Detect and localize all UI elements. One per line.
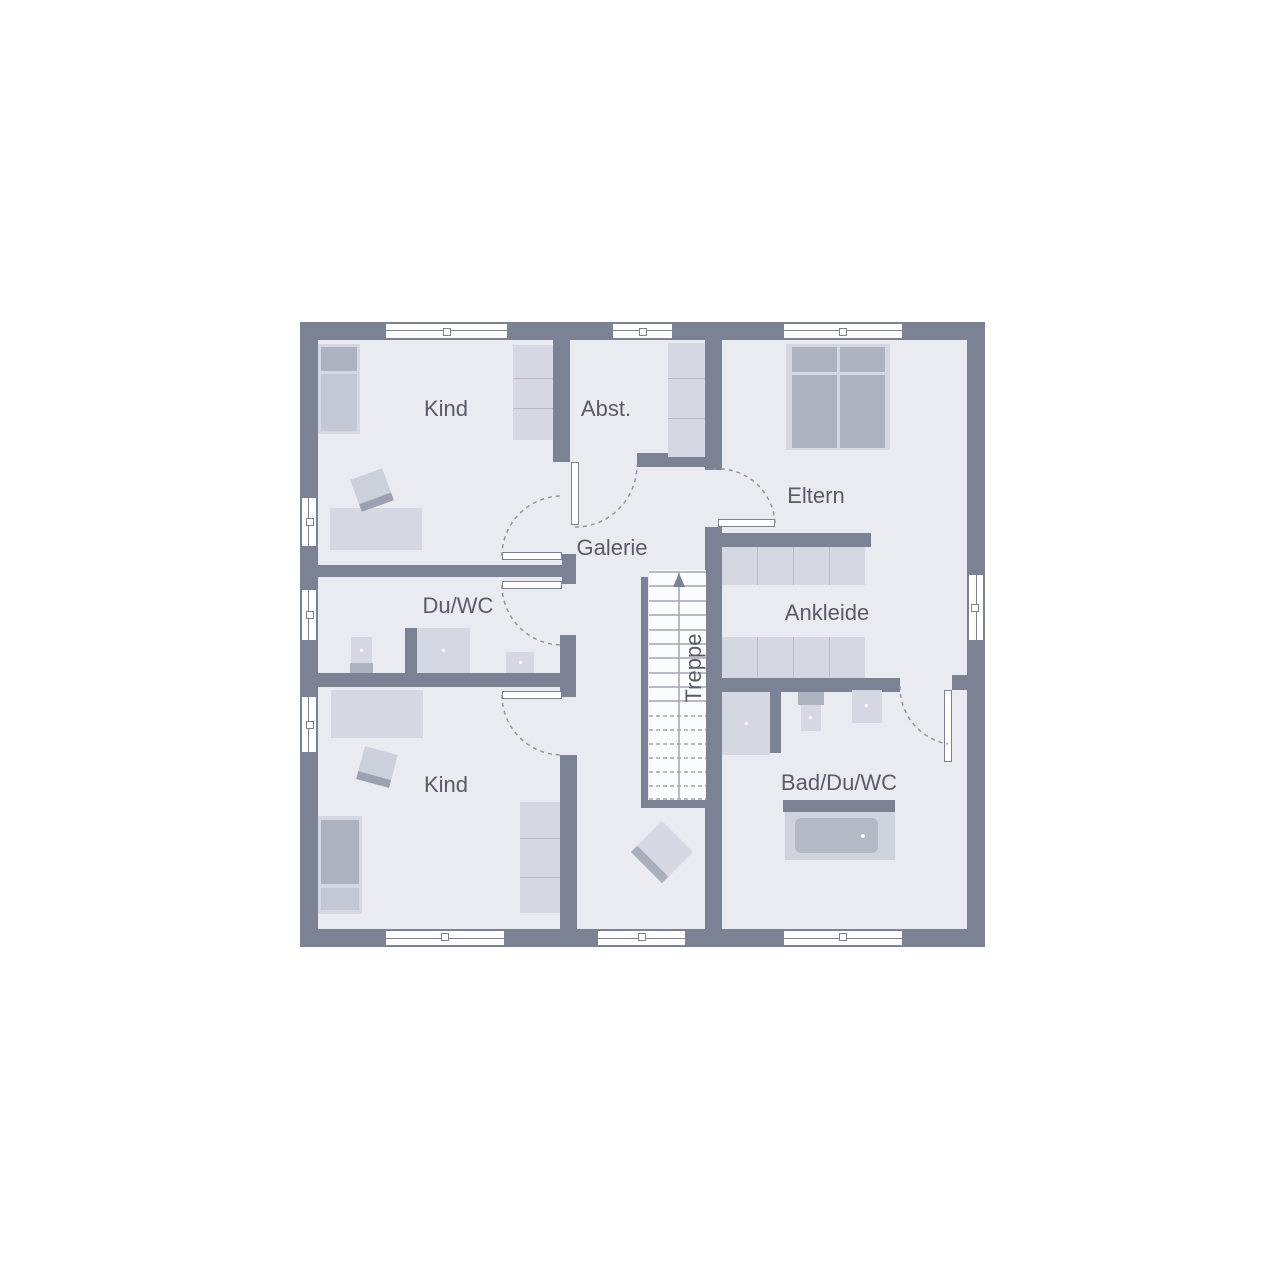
room-label-ankleide: Ankleide	[747, 599, 907, 627]
shower-bad	[722, 692, 770, 755]
wardrobe-kind-top	[513, 345, 553, 440]
room-label-duwc: Du/WC	[378, 592, 538, 620]
desk-kind-top	[330, 508, 422, 550]
door-arc-bad	[900, 686, 948, 744]
wardrobe-divider	[513, 378, 553, 379]
wardrobe-divider	[829, 547, 830, 585]
room-label-bad: Bad/Du/WC	[759, 769, 919, 797]
stair-direction-arrow-icon	[673, 573, 685, 587]
bathtub-head-wall	[783, 800, 895, 812]
wardrobe-divider	[829, 637, 830, 678]
wardrobe-divider	[757, 637, 758, 678]
bed-mattress	[321, 820, 359, 884]
wardrobe-ankleide-bottom	[722, 637, 865, 678]
door-arc-abst	[575, 465, 637, 527]
bed-pillow-left	[792, 347, 837, 372]
bed-pillow	[321, 347, 357, 371]
floor-plan-canvas: Kind Abst. Eltern Galerie Du/WC Ankleide…	[0, 0, 1280, 1280]
room-label-eltern: Eltern	[736, 482, 896, 510]
toilet-tank-bad	[798, 692, 824, 705]
bed-mattress-left	[792, 375, 837, 448]
room-label-abst: Abst.	[526, 395, 686, 423]
room-label-treppe: Treppe	[681, 623, 707, 713]
room-label-kind-top: Kind	[366, 395, 526, 423]
desk-kind-bottom	[331, 690, 423, 738]
wardrobe-ankleide-top	[722, 547, 865, 585]
sink-bad	[852, 690, 882, 723]
sink-duwc	[506, 652, 534, 673]
toilet-tank-duwc	[350, 663, 373, 673]
shower-duwc	[417, 628, 470, 673]
wardrobe-divider	[520, 838, 560, 839]
wardrobe-divider	[520, 877, 560, 878]
bathtub-basin	[795, 818, 878, 853]
toilet-bad	[801, 705, 821, 731]
bathtub-bad	[785, 812, 895, 860]
bed-pillow	[321, 888, 359, 910]
wardrobe-kind-bottom	[520, 802, 560, 913]
door-arc-kind-bottom	[502, 695, 562, 755]
shelf-divider	[668, 378, 705, 379]
bed-mattress	[321, 374, 357, 431]
room-label-kind-bottom: Kind	[366, 771, 526, 799]
room-label-galerie: Galerie	[532, 534, 692, 562]
wardrobe-divider	[793, 637, 794, 678]
toilet-duwc	[351, 637, 372, 664]
floor-plan: Kind Abst. Eltern Galerie Du/WC Ankleide…	[300, 322, 985, 947]
wardrobe-divider	[793, 547, 794, 585]
bed-mattress-right	[840, 375, 885, 448]
bed-pillow-right	[840, 347, 885, 372]
wardrobe-divider	[757, 547, 758, 585]
